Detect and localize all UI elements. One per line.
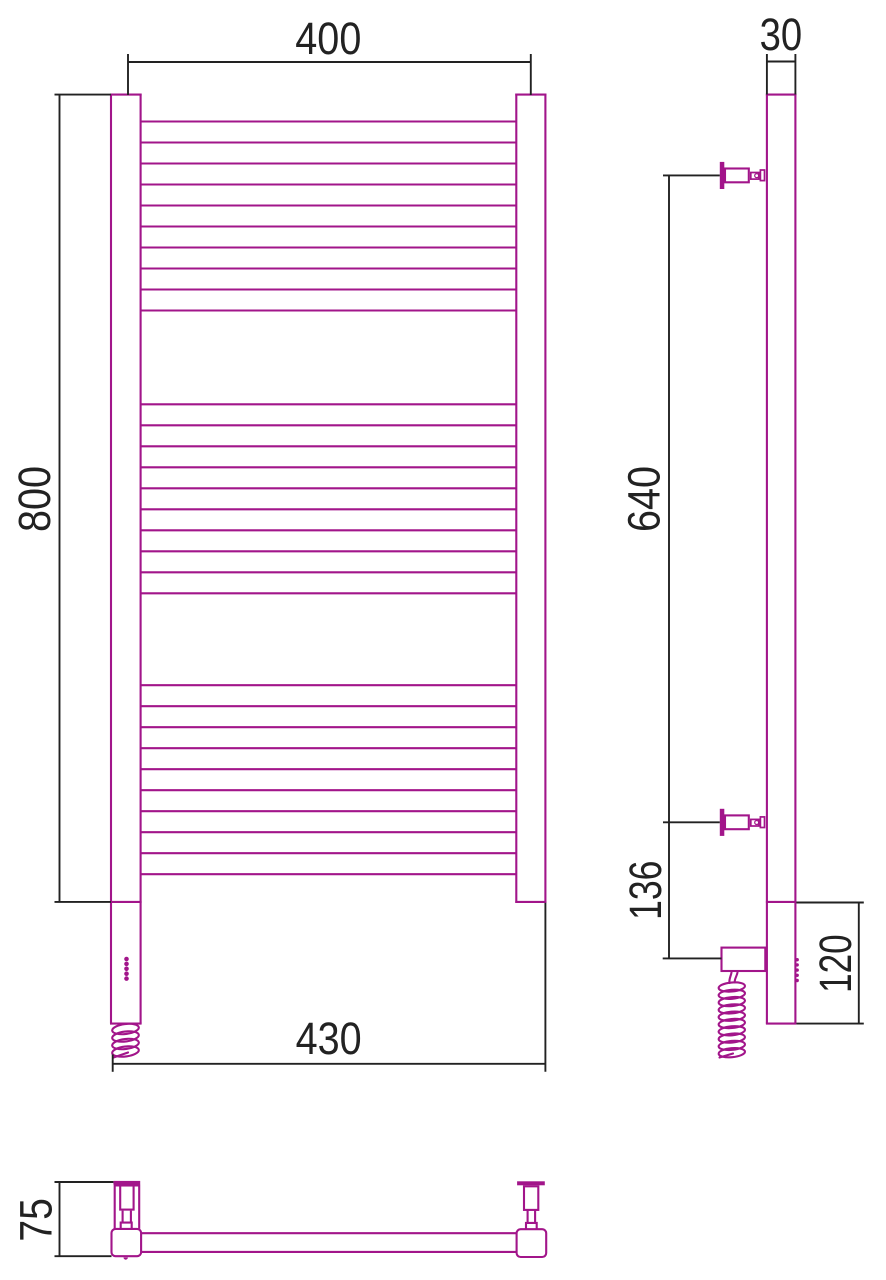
svg-text:30: 30 bbox=[760, 9, 803, 60]
svg-text:120: 120 bbox=[810, 934, 861, 993]
svg-text:430: 430 bbox=[296, 1014, 362, 1064]
svg-text:400: 400 bbox=[295, 14, 361, 64]
svg-text:800: 800 bbox=[10, 466, 60, 532]
svg-text:640: 640 bbox=[619, 466, 669, 532]
svg-text:136: 136 bbox=[620, 861, 671, 920]
svg-text:75: 75 bbox=[11, 1198, 61, 1242]
